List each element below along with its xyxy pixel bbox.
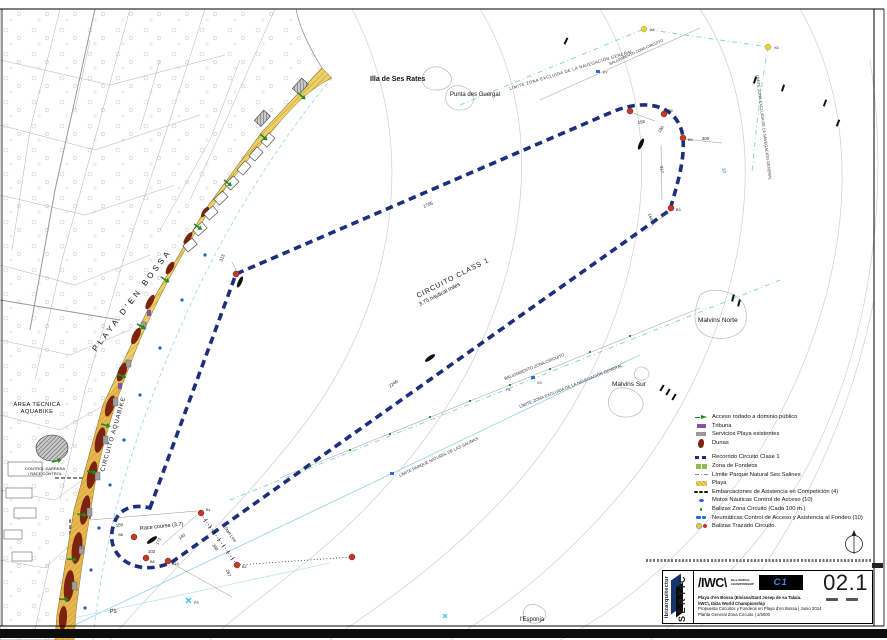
start-line-ticks <box>204 519 235 560</box>
legend-item: Dunas <box>694 439 870 448</box>
limite-nav-right: LÍMITE ZONA EXCLUIDA DE LA NAVEGACIÓN GE… <box>755 75 773 182</box>
svg-text:B5: B5 <box>668 109 673 113</box>
race-course-label: Race course (3.7) <box>140 521 184 532</box>
stamp-tag <box>826 598 838 601</box>
jetski-icon <box>694 499 708 502</box>
microtext-strip <box>646 559 874 562</box>
class1-logo: C1 <box>759 575 803 590</box>
project-title-line4: Planta General Zona Circuito | 1/5000 <box>698 612 868 618</box>
circuit-zone-buoys <box>309 335 631 467</box>
access-arrow-icon <box>694 415 708 419</box>
legend-item: Tribuna <box>694 422 870 431</box>
svg-text:X5: X5 <box>774 46 779 50</box>
svg-text:B2: B2 <box>242 565 247 569</box>
legend: Acceso rodado a dominio público Tribuna … <box>694 413 870 531</box>
malvins-norte-label: Malvins Norte <box>698 317 738 324</box>
contour-ticks <box>564 37 841 400</box>
svg-text:B4: B4 <box>688 138 693 142</box>
svg-text:P1: P1 <box>78 546 83 550</box>
map-canvas: Illa de Ses Rates Punta des Guergal Malv… <box>0 0 887 640</box>
revision-chip <box>872 563 883 568</box>
circuit-dash-icon <box>694 456 708 459</box>
legend-item: Balizas Zona Circuito (Cada 100 m.) <box>694 505 870 514</box>
svg-text:267: 267 <box>225 569 232 578</box>
boundary-labels: LÍMITE ZONA EXCLUIDA DE LA NAVEGACIÓN GE… <box>398 38 773 477</box>
area-tecnica-line1: ÁREA TÉCNICA <box>13 401 60 408</box>
legend-item: Zona de Fondeos <box>694 462 870 471</box>
title-text: Playa d'en Bossa (Eivissa/Sant Josep de … <box>698 595 868 617</box>
ps-label: PS <box>110 609 117 615</box>
services-icon <box>694 432 708 436</box>
svg-text:B3: B3 <box>676 208 681 212</box>
svg-text:X3: X3 <box>537 381 542 385</box>
dunes-icon <box>694 439 708 448</box>
svg-text:X4: X4 <box>650 28 655 32</box>
course-buoy-icon <box>694 523 708 529</box>
svg-text:240: 240 <box>178 532 187 541</box>
firm-name: SERTIC <box>677 573 687 623</box>
legend-item: Límite Parque Natural Ses Salines <box>694 471 870 480</box>
depth-label-10: 10 <box>720 167 727 174</box>
iwc-logo: /IWC\ <box>698 576 727 590</box>
svg-text:158: 158 <box>637 119 646 125</box>
legend-item: Servicios Playa existentes <box>694 430 870 439</box>
svg-text:1705: 1705 <box>422 200 434 209</box>
bottom-black-bar <box>0 629 887 638</box>
title-block-main: /IWC\ Ibiza WORLD CHAMPIONSHIP C1 02.1 P… <box>694 571 872 623</box>
start-line-label: Start Line <box>223 526 238 544</box>
circuit-buoy-icon <box>694 508 708 511</box>
legend-item: Motos Náuticas Control de Acceso (10) <box>694 496 870 505</box>
svg-text:190: 190 <box>657 124 666 133</box>
svg-text:B8: B8 <box>150 560 155 564</box>
stamp-tag <box>846 598 858 601</box>
svg-text:P3: P3 <box>194 601 199 605</box>
area-tecnica-line2: AQUABIKE <box>21 409 54 415</box>
svg-text:102: 102 <box>148 549 156 554</box>
legend-item: Balizas Trazado Circuito. <box>694 522 870 531</box>
brand-name: ibizarquitectur <box>664 572 670 622</box>
svg-text:189: 189 <box>115 522 123 528</box>
legend-item: Playa <box>694 479 870 488</box>
legend-item: Recorrido Circuito Clase 1 <box>694 453 870 462</box>
legend-item: Embarcaciones de Asistencia en Competici… <box>694 488 870 497</box>
anchor-zone-icon <box>694 464 708 469</box>
circuit-name-label: CIRCUITO CLASS 1 <box>416 257 491 300</box>
limite-parque: LÍMITE PARQUE NATURAL DE LAS SALINAS <box>398 436 479 478</box>
title-block: ibizarquitectur SERTIC /IWC\ Ibiza WORLD… <box>662 570 873 624</box>
svg-text:P7: P7 <box>603 71 608 75</box>
limite-nav-top: LÍMITE ZONA EXCLUIDA DE LA NAVEGACIÓN GE… <box>509 48 634 91</box>
legend-item: Acceso rodado a dominio público <box>694 413 870 422</box>
esponja-label: l'Esponja <box>520 617 545 623</box>
punta-label: Punta des Guergal <box>450 92 500 98</box>
svg-text:B10: B10 <box>172 562 179 566</box>
tribuna-icon <box>694 424 708 428</box>
firm-strip: ibizarquitectur SERTIC <box>663 571 694 623</box>
inflatable-icon <box>694 516 708 519</box>
north-compass <box>846 530 863 554</box>
svg-text:B6: B6 <box>118 533 123 537</box>
control-carrera-line2: / RACE CONTROL <box>28 471 63 476</box>
iwc-logo-subtext: Ibiza WORLD CHAMPIONSHIP <box>731 579 755 586</box>
svg-text:313: 313 <box>218 253 226 262</box>
svg-text:200: 200 <box>702 136 710 141</box>
svg-text:317: 317 <box>659 166 665 174</box>
malvins-sur-label: Malvins Sur <box>612 381 647 388</box>
svg-text:P4: P4 <box>506 388 511 392</box>
svg-text:300: 300 <box>211 543 220 552</box>
park-limit-icon <box>694 474 708 475</box>
svg-text:2246: 2246 <box>388 379 399 389</box>
beach-icon <box>694 481 708 486</box>
island-label: Illa de Ses Rates <box>370 76 425 83</box>
svg-text:B1: B1 <box>206 508 211 512</box>
legend-item: Neumáticas Control de Acceso y Asistenci… <box>694 514 870 523</box>
sheet-number: 02.1 <box>823 570 868 596</box>
assist-boats-icon <box>694 491 708 493</box>
